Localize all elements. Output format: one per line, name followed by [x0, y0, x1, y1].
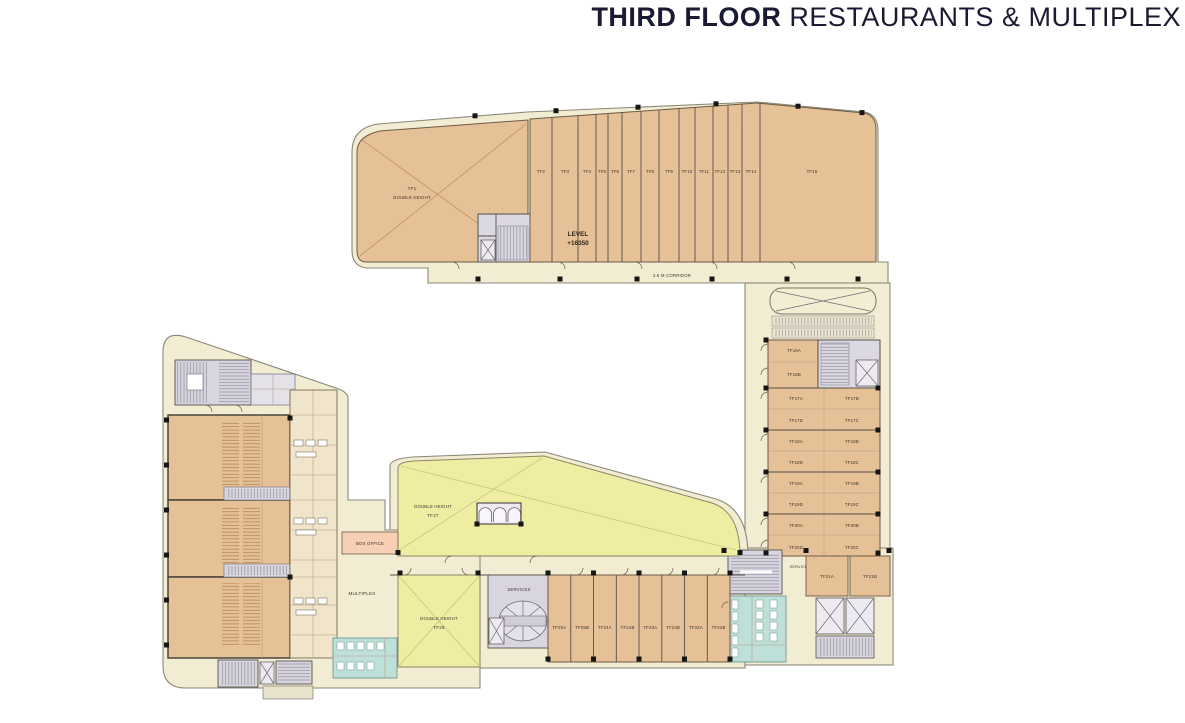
unit-label-tf23a: TF23A — [643, 625, 657, 630]
floor-plan-page: THIRD FLOOR RESTAURANTS & MULTIPLEX — [0, 0, 1185, 723]
unit-label-tf15: TF15 — [807, 169, 818, 174]
services-label-center: SERVICES — [507, 587, 530, 592]
unit-label-tf3: TF3 — [561, 169, 570, 174]
unit-label-tf22a: TF22A — [689, 625, 703, 630]
unit-label-tf20d: TF20D — [789, 545, 803, 550]
unit-label-tf12: TF12 — [715, 169, 726, 174]
unit-label-tf18d: TF18D — [789, 460, 803, 465]
right-wing-core — [818, 340, 880, 388]
unit-label-tf24b: TF24B — [621, 625, 635, 630]
center-services: SERVICES — [488, 575, 548, 648]
unit-label-tf17a: TF17A — [789, 396, 803, 401]
top-stair-core — [478, 214, 530, 262]
unit-label-tf21b: TF21B — [863, 574, 877, 579]
projection-strip — [290, 390, 337, 658]
top-band: TF1 DOUBLE HEIGHT TF2 TF3 TF4 TF5 TF6 — [357, 100, 876, 278]
stairs — [498, 226, 528, 260]
unit-label-tf25b: TF25B — [575, 625, 589, 630]
unit-label-tf1: TF1 — [408, 186, 417, 191]
floor-plan-drawing: TF1 DOUBLE HEIGHT TF2 TF3 TF4 TF5 TF6 — [0, 0, 1185, 723]
unit-label-tf10: TF10 — [682, 169, 693, 174]
tf27-escalator-bay — [477, 503, 521, 524]
unit-label-tf18b: TF18B — [845, 439, 859, 444]
tf26-block: DOUBLE HEIGHT TF26 — [398, 575, 480, 667]
tf27-block: DOUBLE HEIGHT TF27 — [398, 456, 740, 556]
service-stub — [263, 686, 313, 699]
unit-label-tf18a: TF18A — [789, 439, 803, 444]
unit-label-tf16b: TF16B — [787, 372, 801, 377]
unit-label-tf17c: TF17C — [845, 418, 859, 423]
unit-label-tf26: TF26 — [433, 625, 445, 630]
unit-label-tf5: TF5 — [598, 169, 607, 174]
unit-label-tf2: TF2 — [537, 169, 546, 174]
unit-label-tf20c: TF20C — [845, 545, 859, 550]
unit-label-tf18c: TF18C — [845, 460, 859, 465]
unit-label-tf19c: TF19C — [845, 502, 859, 507]
unit-label-tf20b: TF20B — [845, 523, 859, 528]
unit-label-tf19d: TF19D — [789, 502, 803, 507]
unit-label-tf17b: TF17B — [845, 396, 859, 401]
unit-label-tf23b: TF23B — [666, 625, 680, 630]
box-office-label: BOX OFFICE — [356, 541, 384, 546]
level-label-line2: +16350 — [567, 240, 589, 247]
unit-label-tf27: TF27 — [427, 513, 439, 518]
unit-label-tf24a: TF24A — [598, 625, 612, 630]
stairs — [821, 343, 849, 385]
unit-label-tf4: TF4 — [583, 169, 592, 174]
unit-label-tf9: TF9 — [665, 169, 674, 174]
restaurant-strip — [530, 103, 876, 262]
unit-note-tf1: DOUBLE HEIGHT — [393, 195, 431, 200]
unit-label-tf6: TF6 — [611, 169, 620, 174]
unit-label-tf20a: TF20A — [789, 523, 803, 528]
unit-label-tf17d: TF17D — [789, 418, 803, 423]
unit-label-tf16a: TF16A — [787, 348, 801, 353]
unit-label-tf11: TF11 — [699, 169, 710, 174]
unit-note-tf26: DOUBLE HEIGHT — [420, 616, 458, 621]
level-label-line1: LEVEL — [568, 231, 589, 238]
bottom-center: SERVICES TF25A TF25B TF24A TF24B TF23A T… — [390, 575, 745, 667]
unit-label-tf22b: TF22B — [712, 625, 726, 630]
unit-label-tf13: TF13 — [730, 169, 741, 174]
multiplex-label: MULTIPLEX — [349, 591, 376, 596]
unit-label-tf25a: TF25A — [552, 625, 566, 630]
unit-label-tf19a: TF19A — [789, 481, 803, 486]
unit-note-tf27: DOUBLE HEIGHT — [414, 504, 452, 509]
corridor-label: 3.6 M CORRIDOR — [653, 273, 691, 278]
unit-label-tf19b: TF19B — [845, 481, 859, 486]
unit-label-tf21a: TF21A — [820, 574, 834, 579]
unit-label-tf14: TF14 — [746, 169, 757, 174]
unit-label-tf8: TF8 — [646, 169, 655, 174]
right-wing: TF16A TF16B TF17A TF17B TF17D TF17C TF18… — [768, 288, 880, 556]
unit-label-tf7: TF7 — [627, 169, 636, 174]
cinema-halls — [168, 415, 290, 658]
